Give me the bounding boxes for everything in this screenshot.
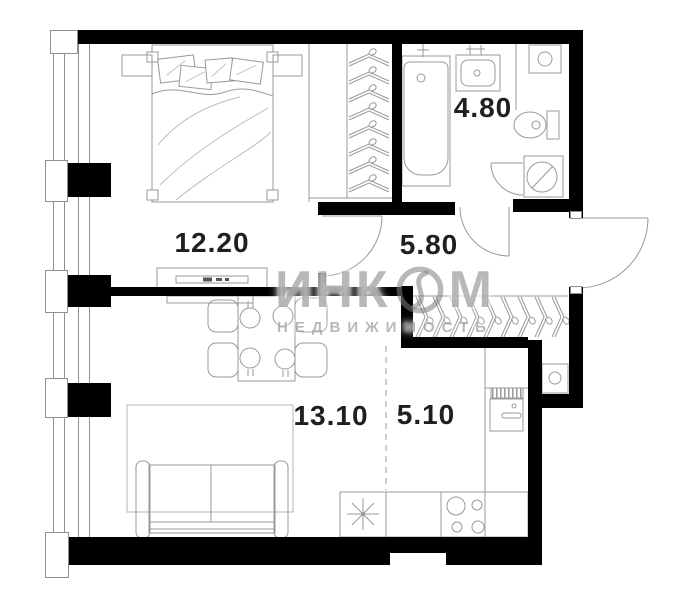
pillows — [158, 55, 264, 90]
closet-wardrobe — [309, 44, 392, 202]
hanger-icon — [349, 49, 389, 66]
wall-closet-south — [318, 202, 455, 215]
stove — [447, 497, 484, 533]
dining-chair — [295, 343, 327, 377]
washer-nook-appliance — [542, 364, 568, 393]
water-heater — [491, 156, 563, 197]
wall-right-upper — [569, 30, 583, 218]
wall-closet-bath-divider — [392, 43, 402, 202]
hanger-icon — [552, 297, 569, 337]
entrance-jamb — [570, 211, 582, 219]
window-pier — [66, 383, 111, 417]
bathroom-sink — [456, 45, 500, 91]
wall-kitchen-north — [401, 337, 528, 348]
blanket-edge — [152, 89, 273, 96]
watermark-brand-left: ИНК — [275, 262, 391, 318]
bed — [147, 45, 278, 202]
entrance-door-arc — [578, 218, 648, 288]
window-pier — [66, 163, 111, 197]
window-sill-box — [45, 270, 68, 313]
window-sill-box — [50, 30, 78, 54]
watermark-brand: ИНК М — [235, 262, 535, 318]
dining-chair — [208, 300, 238, 332]
window-sill-box — [45, 378, 68, 418]
kitchen-sink — [347, 498, 379, 530]
wall-right-mid — [569, 287, 583, 408]
kitchen-cabinet-line — [485, 348, 528, 492]
hanger-icon — [349, 85, 389, 102]
rug — [127, 405, 293, 512]
entrance-jamb — [570, 286, 582, 294]
room-area-label-bathroom: 4.80 — [423, 92, 543, 124]
faucet-icon — [466, 45, 485, 55]
dining-chair — [208, 343, 238, 377]
hanger-icon — [349, 103, 389, 120]
fridge — [490, 388, 523, 431]
wall-top — [66, 30, 583, 44]
sofa — [136, 461, 288, 538]
hanger-icon — [349, 67, 389, 84]
faucet-icon — [417, 44, 429, 57]
plate — [240, 348, 260, 368]
window-pier — [66, 275, 111, 307]
hanger-icon — [349, 157, 389, 174]
room-area-label-hallway: 5.80 — [369, 229, 489, 261]
hanger-icon — [535, 297, 552, 337]
watermark-logo-icon — [393, 263, 447, 317]
watermark-subtitle: НЕДВИЖИМОСТЬ — [235, 319, 535, 336]
watermark-brand-right: М — [449, 262, 495, 318]
window-sill-box — [45, 160, 68, 202]
wall-notch — [390, 553, 446, 565]
wall-bottom — [62, 537, 542, 565]
cabinet-door-arc — [491, 163, 523, 195]
washing-machine — [529, 45, 561, 73]
watermark: ИНК М НЕДВИЖИМОСТЬ — [235, 262, 535, 336]
plate — [275, 349, 295, 369]
hanger-icon — [349, 139, 389, 156]
floor-plan: 12.20 4.80 5.80 13.10 5.10 ИНК М НЕДВИЖИ… — [0, 0, 696, 600]
wall-kitchen-east — [528, 340, 542, 565]
hanger-icon — [349, 175, 389, 192]
room-area-label-bedroom: 12.20 — [152, 227, 272, 259]
window-sill-box — [45, 532, 69, 578]
room-area-label-kitchen: 5.10 — [366, 399, 486, 431]
hanger-icon — [349, 121, 389, 138]
